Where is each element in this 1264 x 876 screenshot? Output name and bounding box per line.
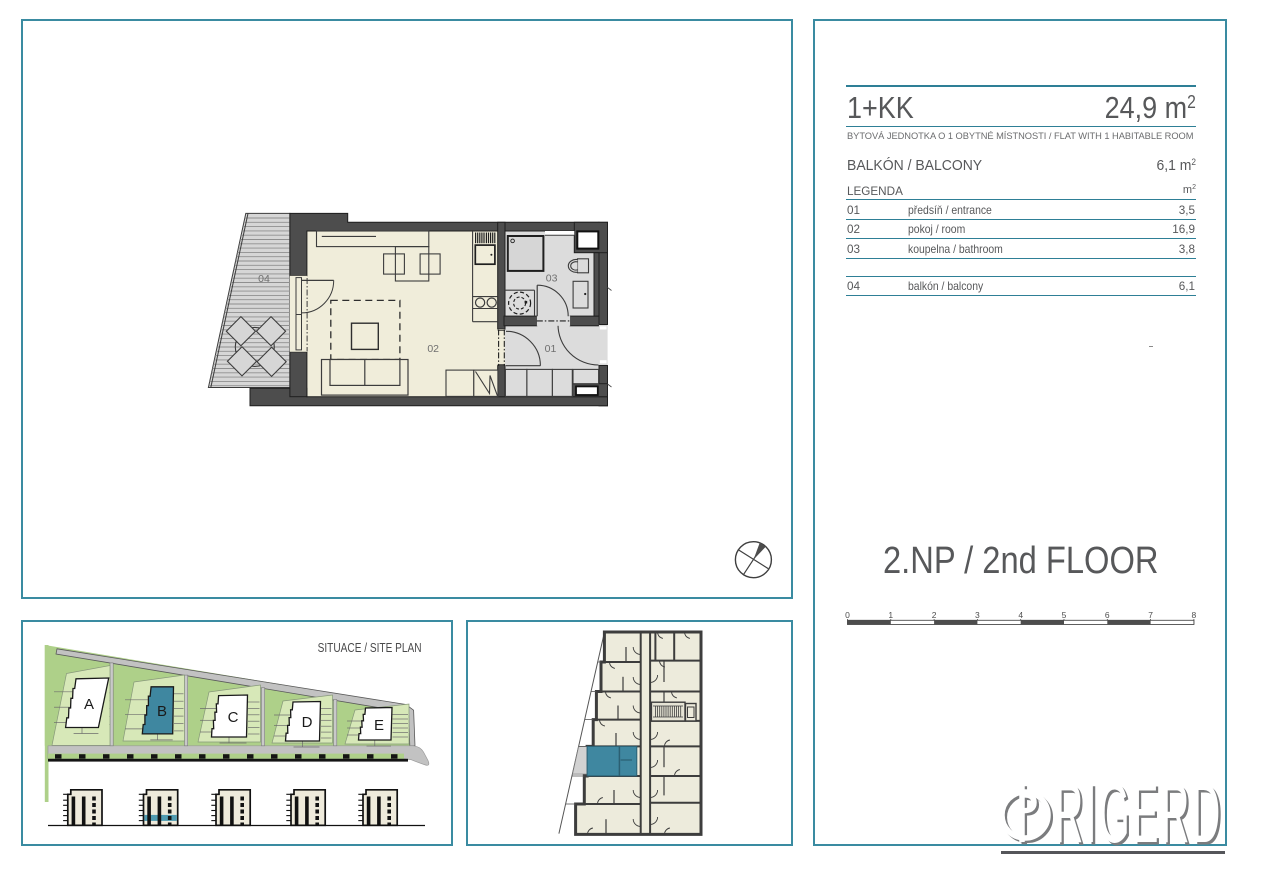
svg-text:RIGERD: RIGERD [1055,775,1223,850]
svg-text:2: 2 [932,610,937,620]
svg-text:03: 03 [546,273,558,285]
svg-text:3: 3 [975,610,980,620]
svg-text:8: 8 [1192,610,1197,620]
svg-text:D: D [302,714,313,731]
svg-text:1: 1 [888,610,893,620]
svg-text:01: 01 [545,343,557,355]
svg-text:A: A [84,696,94,713]
svg-text:5: 5 [1062,610,1067,620]
svg-text:04: 04 [258,273,270,285]
svg-text:C: C [228,709,239,726]
svg-text:0: 0 [845,610,850,620]
svg-text:4: 4 [1018,610,1023,620]
svg-text:7: 7 [1148,610,1153,620]
svg-text:E: E [374,717,384,734]
svg-text:B: B [157,703,167,720]
svg-text:02: 02 [427,343,439,355]
svg-text:6: 6 [1105,610,1110,620]
svg-text:SITUACE / SITE PLAN: SITUACE / SITE PLAN [318,640,422,655]
